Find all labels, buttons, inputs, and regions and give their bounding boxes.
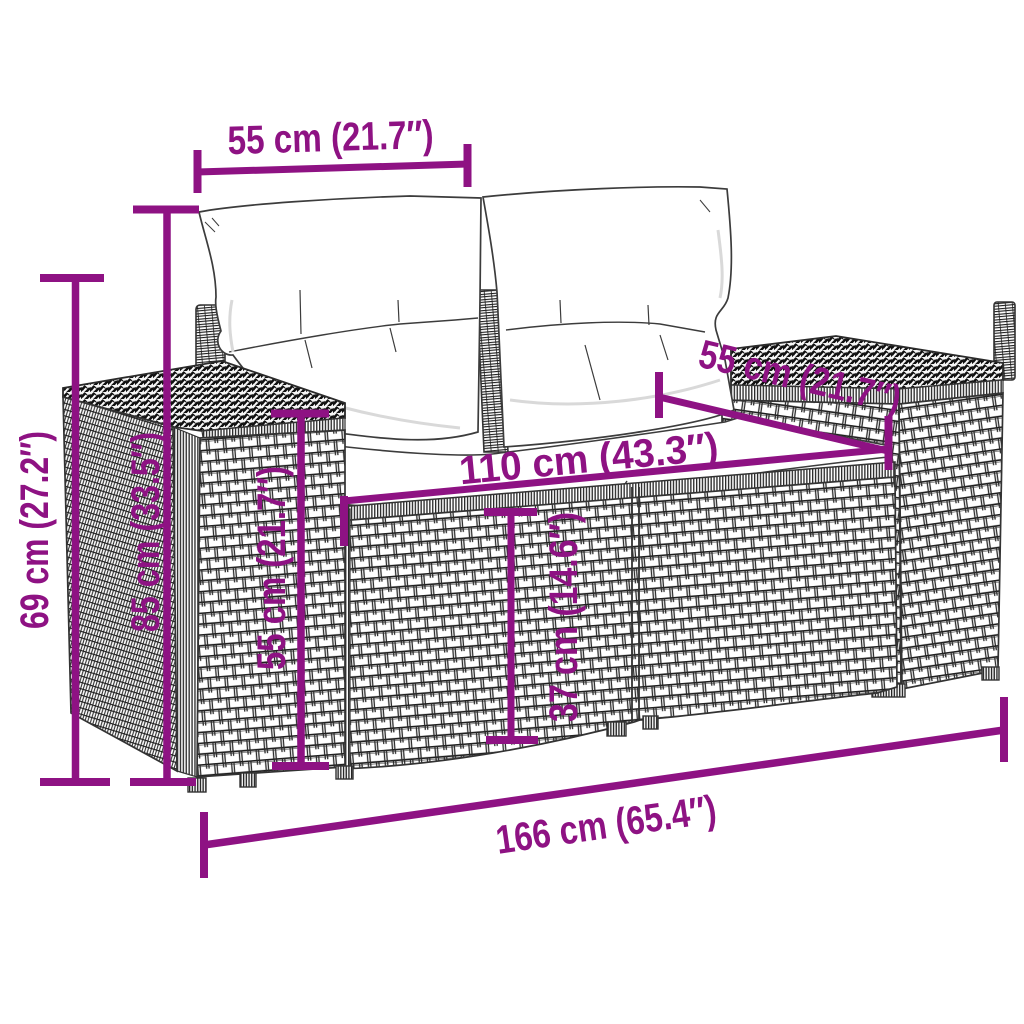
svg-text:55 cm (21.7″): 55 cm (21.7″) xyxy=(250,466,294,670)
svg-text:69 cm (27.2″): 69 cm (27.2″) xyxy=(13,431,57,629)
svg-text:37 cm (14.6″): 37 cm (14.6″) xyxy=(542,512,586,722)
svg-text:55 cm (21.7″): 55 cm (21.7″) xyxy=(227,113,434,163)
svg-text:85 cm (33.5″): 85 cm (33.5″) xyxy=(124,432,168,632)
